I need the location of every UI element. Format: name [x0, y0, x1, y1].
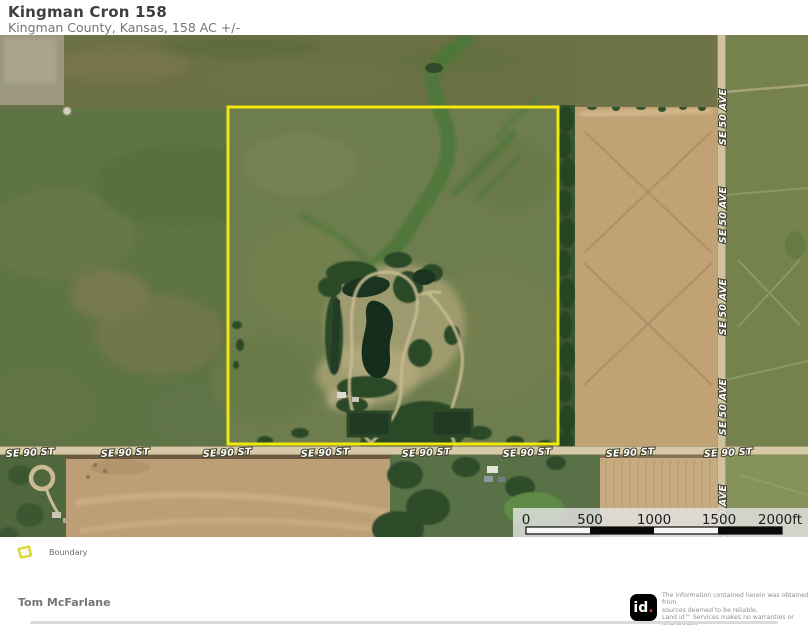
logo-dot: . [648, 600, 653, 616]
legend: Boundary [0, 537, 808, 567]
road-label-se-50-ave: SE 50 AVE [718, 279, 729, 336]
scale-tick-500: 500 [577, 512, 603, 528]
road-label-se-50-ave: SE 50 AVE [718, 187, 729, 244]
header: Kingman Cron 158 Kingman County, Kansas,… [0, 0, 808, 35]
scale-bar: 0 500 1000 1500 2000ft [513, 508, 808, 537]
legend-item-boundary: Boundary [16, 545, 88, 559]
disclaimer-line: The information contained herein was obt… [662, 592, 808, 607]
road-label-se-50-ave: SE 50 AVE [718, 89, 729, 146]
legend-label-boundary: Boundary [49, 548, 88, 557]
map-container: SE 90 ST SE 90 ST SE 90 ST SE 90 ST SE 9… [0, 35, 808, 537]
land-id-logo: id. [630, 594, 657, 621]
bottom-divider [30, 621, 778, 624]
logo-text: id [633, 600, 648, 616]
scale-tick-1500: 1500 [702, 512, 736, 528]
disclaimer-line: sources deemed to be reliable. [662, 607, 808, 614]
scale-end-label: 2000ft [758, 512, 802, 528]
scale-tick-0: 0 [522, 512, 531, 528]
page-title: Kingman Cron 158 [8, 3, 167, 21]
map-image: SE 90 ST SE 90 ST SE 90 ST SE 90 ST SE 9… [0, 35, 808, 537]
scale-tick-1000: 1000 [637, 512, 671, 528]
road-label-se-50-ave: SE 50 AVE [718, 379, 729, 436]
page-subtitle: Kingman County, Kansas, 158 AC +/- [8, 20, 240, 35]
map-export-page: Kingman Cron 158 Kingman County, Kansas,… [0, 0, 808, 625]
boundary-legend-icon [16, 545, 33, 559]
author-name: Tom McFarlane [18, 596, 111, 609]
